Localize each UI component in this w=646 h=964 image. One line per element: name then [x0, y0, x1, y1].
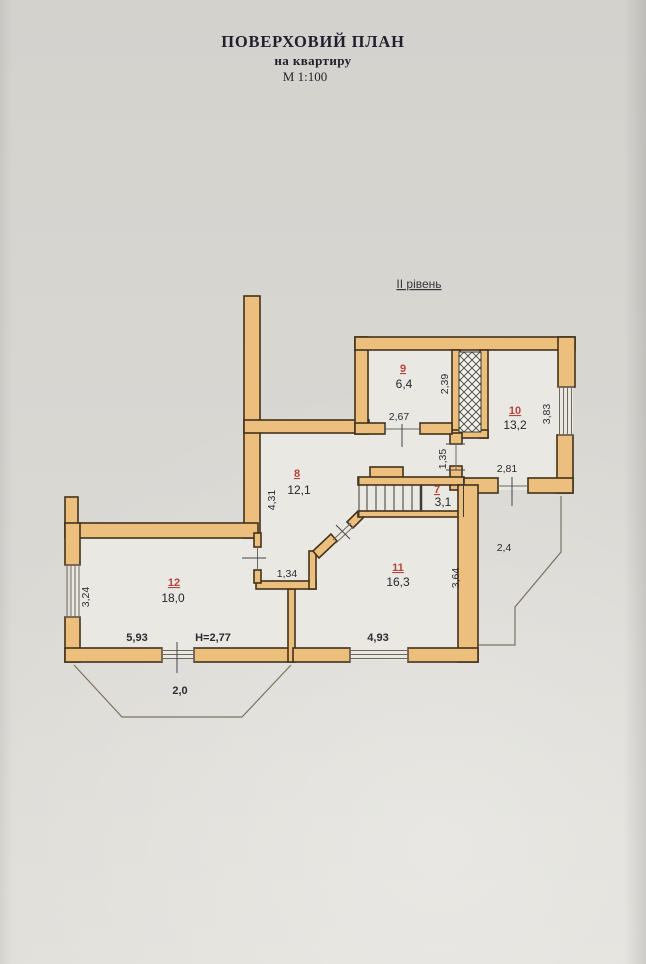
room-10-number: 10 [509, 405, 521, 417]
wall-segment [293, 648, 350, 662]
dim-2-67: 2,67 [389, 411, 410, 423]
page-subtitle: на квартиру [274, 53, 351, 68]
dim-2-4: 2,4 [497, 542, 512, 554]
stair-wall-top [358, 477, 464, 485]
wall-segment [528, 478, 573, 493]
wall-segment [558, 337, 575, 387]
dim-5-93: 5,93 [126, 632, 147, 644]
room-10-area: 13,2 [503, 418, 527, 432]
wall-segment [244, 296, 260, 538]
shaft-hatch-icon [459, 352, 481, 432]
dim-2-0: 2,0 [172, 685, 187, 697]
wall-segment [254, 533, 261, 547]
level-label: ІІ рівень [396, 277, 441, 291]
wall-segment [65, 523, 258, 538]
room-9-area: 6,4 [396, 377, 413, 391]
room-8-number: 8 [294, 468, 300, 480]
stair-wall-bottom [358, 511, 464, 517]
door-balcony [162, 648, 194, 662]
scale-label: М 1:100 [283, 69, 327, 84]
wall-segment [244, 420, 369, 433]
room-12-number: 12 [168, 577, 180, 589]
wall-segment [254, 570, 261, 583]
dim-2-81: 2,81 [497, 463, 518, 475]
page-title: ПОВЕРХОВИЙ ПЛАН [221, 32, 404, 51]
floor-plan-drawing: ПОВЕРХОВИЙ ПЛАН на квартиру М 1:100 ІІ р… [0, 0, 646, 964]
wall-segment [420, 423, 452, 434]
wall-segment [256, 581, 316, 589]
dim-4-31: 4,31 [266, 490, 278, 511]
room-11-area: 16,3 [386, 575, 410, 589]
wall-segment [309, 551, 316, 589]
ceiling-height-label: H=2,77 [195, 632, 231, 644]
room-8-area: 12,1 [287, 483, 311, 497]
scanned-floor-plan-page: ПОВЕРХОВИЙ ПЛАН на квартиру М 1:100 ІІ р… [0, 0, 646, 964]
room-9-number: 9 [400, 363, 406, 375]
dim-1-34: 1,34 [277, 568, 298, 580]
terrace-outline [479, 496, 561, 645]
wall-segment [355, 423, 385, 434]
wall-segment [65, 648, 162, 662]
floor-fills [70, 340, 573, 660]
dim-2-39: 2,39 [439, 374, 451, 395]
dim-3-64: 3,64 [450, 568, 462, 589]
dim-3-24: 3,24 [80, 587, 92, 608]
wall-segment [65, 497, 78, 525]
title-block: ПОВЕРХОВИЙ ПЛАН на квартиру М 1:100 [221, 32, 404, 84]
wall-segment [355, 337, 575, 350]
wall-segment [65, 523, 80, 565]
dim-1-35: 1,35 [437, 449, 449, 470]
wall-segment [408, 648, 478, 662]
dim-4-93: 4,93 [367, 632, 388, 644]
dim-3-83: 3,83 [541, 404, 553, 425]
room-11-number: 11 [392, 562, 404, 574]
room-12-area: 18,0 [161, 591, 185, 605]
room-7-area: 3,1 [435, 495, 452, 509]
wall-segment [355, 337, 368, 434]
wall-segment [194, 648, 293, 662]
shaft [459, 352, 481, 432]
